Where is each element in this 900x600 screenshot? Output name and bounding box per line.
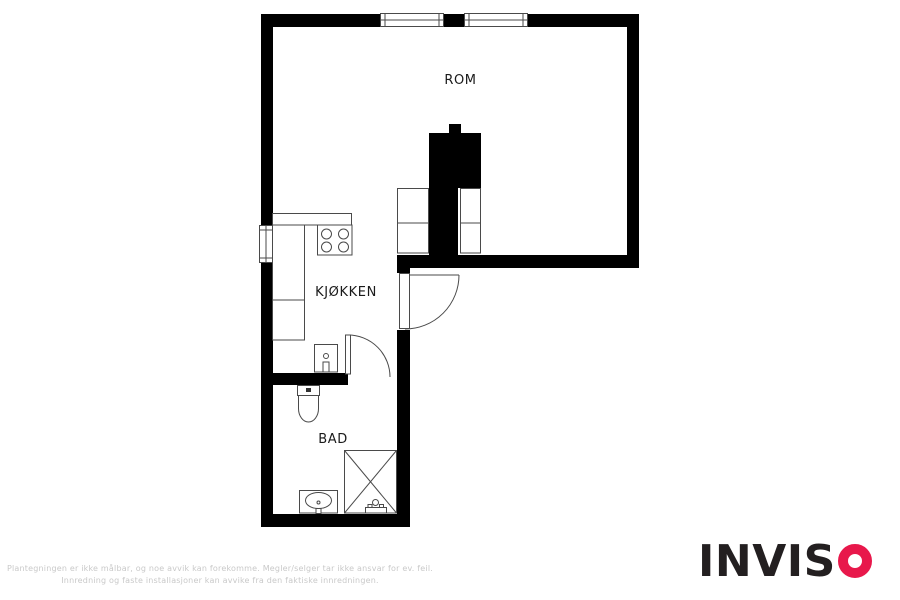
chimney-column — [429, 188, 458, 258]
room-label-kjokken: KJØKKEN — [296, 285, 396, 300]
bathroom-door-swing-arc — [348, 335, 390, 377]
chimney-block — [429, 133, 481, 188]
bathroom-bottom-wall — [261, 514, 410, 527]
entry-door-swing-arc — [405, 275, 459, 329]
kitchen-window-icon — [260, 226, 273, 263]
bathroom-door-leaf — [346, 335, 351, 374]
entry-door — [400, 274, 460, 330]
floor-plan-page: ROM KJØKKEN BAD Plantegningen er ikke må… — [0, 0, 900, 600]
left-wall — [261, 14, 273, 527]
toilet-icon — [298, 386, 320, 423]
kitchen-sink-icon — [315, 345, 338, 373]
top-window-right-icon — [465, 14, 528, 27]
chimney-nub — [449, 124, 461, 134]
top-wall — [261, 14, 639, 27]
disclaimer-text: Plantegningen er ikke målbar, og noe avv… — [0, 563, 440, 587]
floor-plan-drawing — [0, 0, 900, 600]
logo-o-icon — [838, 544, 872, 578]
bathroom-divider-wall — [273, 373, 348, 385]
stove-icon — [318, 225, 353, 255]
bathroom-sink-icon — [300, 491, 338, 514]
right-wall — [627, 14, 639, 267]
bathroom-door — [346, 335, 391, 377]
cabinet-left-icon — [398, 189, 429, 254]
entry-door-leaf — [400, 274, 410, 329]
inviso-logo: INVIS — [698, 540, 872, 584]
disclaimer-line-1: Plantegningen er ikke målbar, og noe avv… — [0, 563, 440, 575]
disclaimer-line-2: Innredning og faste installasjoner kan a… — [0, 575, 440, 587]
room-label-rom: ROM — [430, 73, 491, 88]
top-window-left-icon — [381, 14, 444, 27]
logo-text: INVIS — [698, 536, 836, 587]
room-label-bad: BAD — [303, 432, 363, 447]
walls — [261, 14, 639, 527]
shower-icon — [345, 451, 397, 514]
cabinet-right-icon — [461, 189, 481, 254]
